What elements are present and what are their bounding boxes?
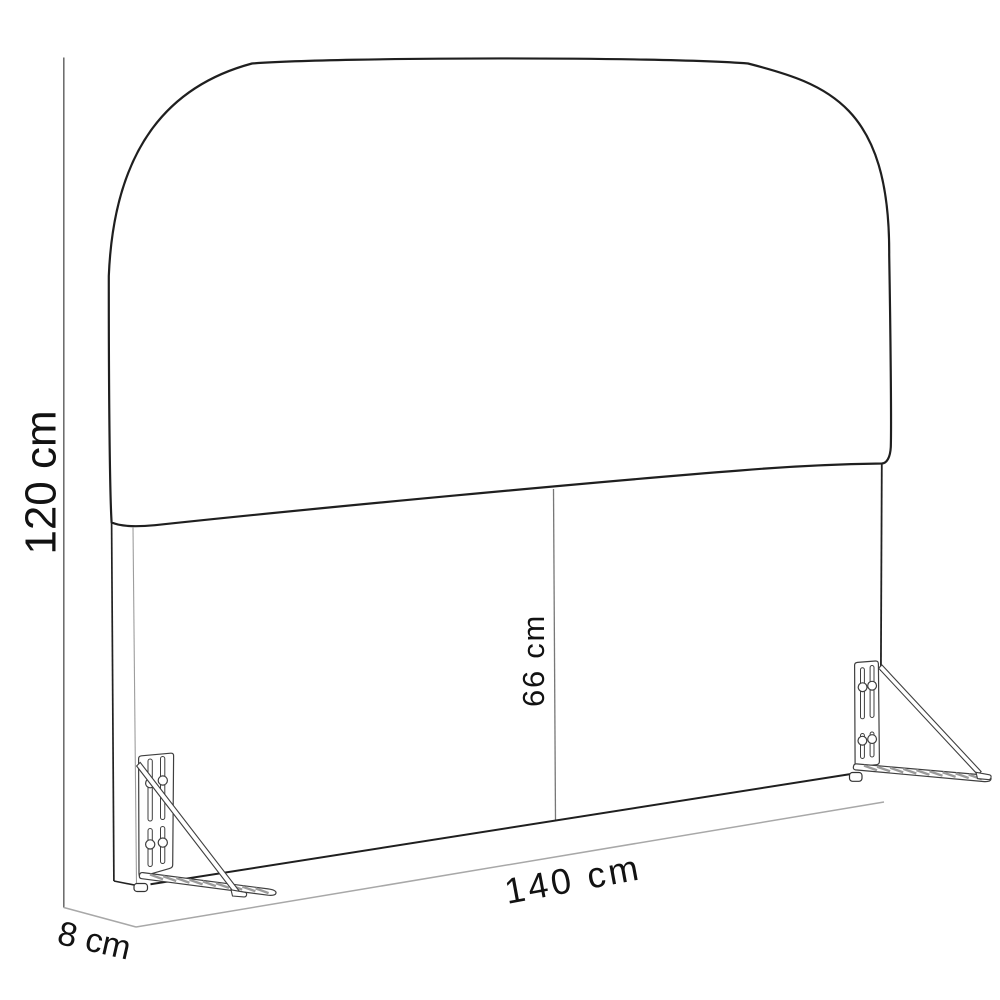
svg-text:66 cm: 66 cm bbox=[516, 614, 551, 707]
svg-text:140 cm: 140 cm bbox=[501, 846, 645, 912]
svg-text:8 cm: 8 cm bbox=[54, 914, 134, 967]
svg-text:120 cm: 120 cm bbox=[16, 410, 65, 554]
